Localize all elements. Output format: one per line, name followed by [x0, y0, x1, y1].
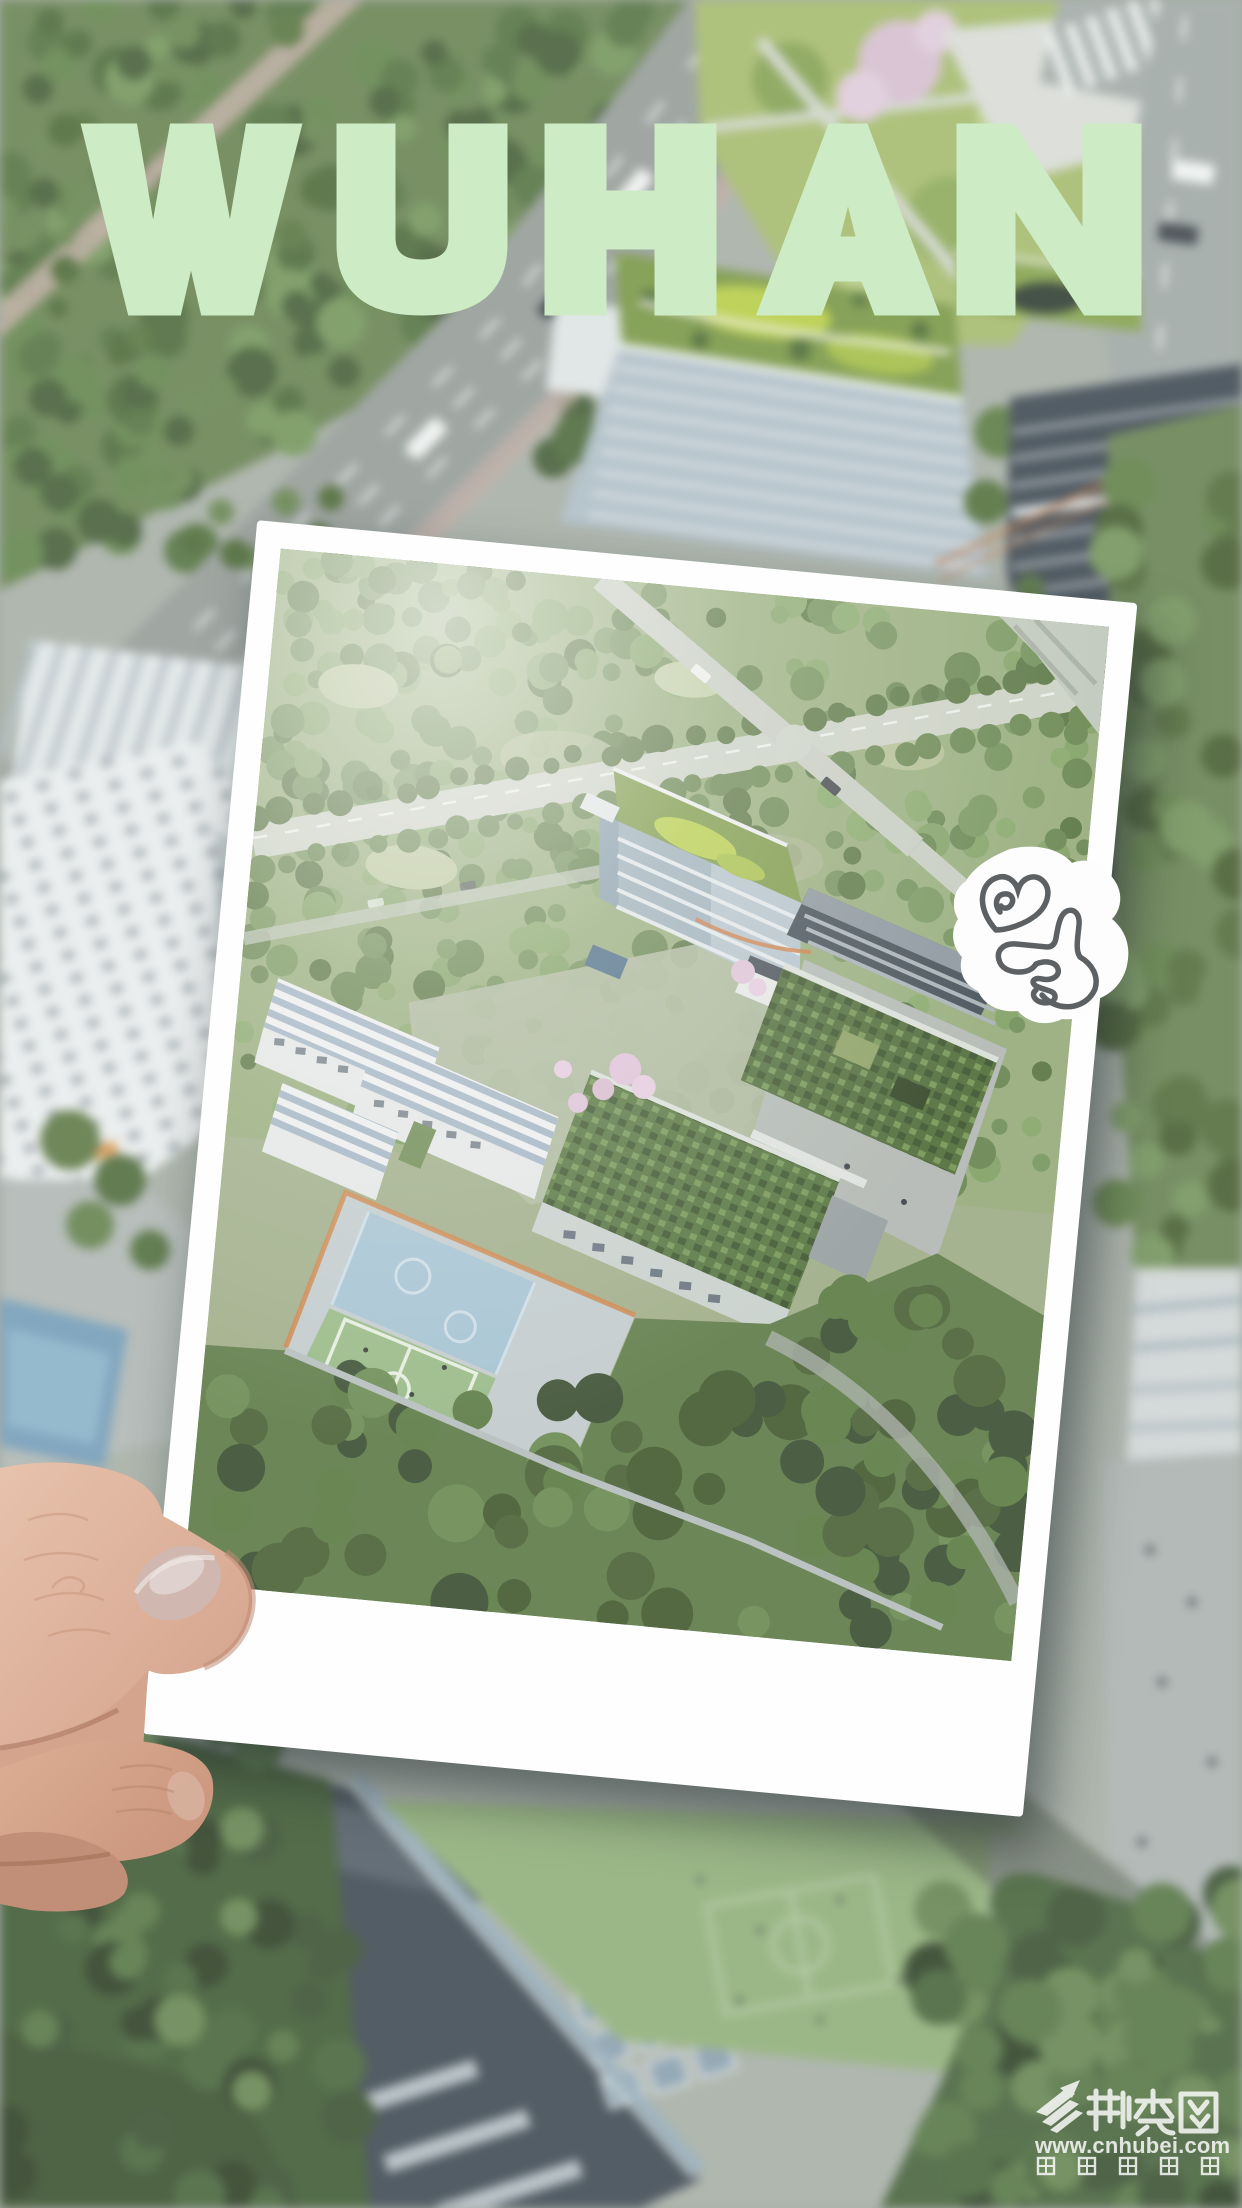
svg-text:www.cnhubei.com: www.cnhubei.com [1034, 2133, 1230, 2158]
